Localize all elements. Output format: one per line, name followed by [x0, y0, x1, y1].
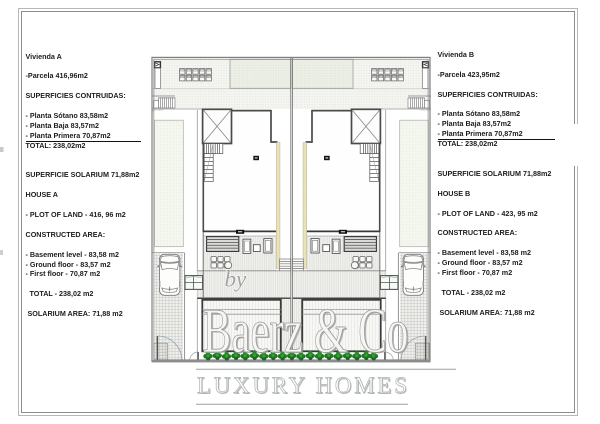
svg-text:by: by: [225, 267, 248, 292]
svg-text:Baerz & Co: Baerz & Co: [203, 295, 409, 366]
